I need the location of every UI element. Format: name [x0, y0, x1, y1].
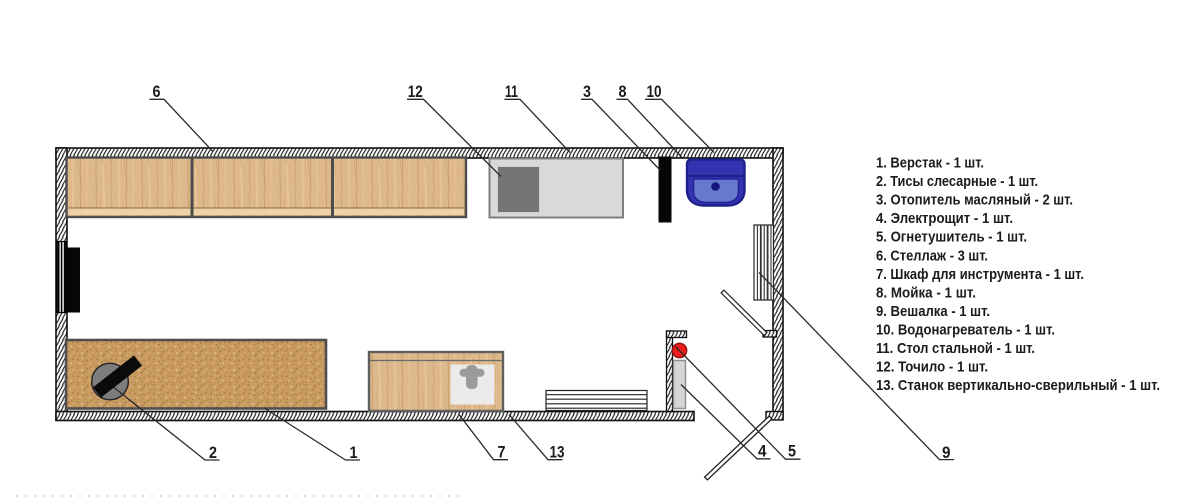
svg-text:9. Вешалка - 1 шт.: 9. Вешалка - 1 шт. — [876, 303, 990, 320]
svg-text:3. Отопитель масляный - 2 шт.: 3. Отопитель масляный - 2 шт. — [876, 192, 1073, 209]
svg-text:5. Огнетушитель - 1 шт.: 5. Огнетушитель - 1 шт. — [876, 229, 1027, 246]
svg-text:4: 4 — [758, 442, 767, 461]
svg-text:3: 3 — [583, 82, 591, 101]
svg-text:1: 1 — [350, 443, 358, 462]
svg-text:12. Точило - 1 шт.: 12. Точило - 1 шт. — [876, 359, 988, 376]
svg-text:11: 11 — [505, 82, 518, 101]
svg-text:8. Мойка - 1 шт.: 8. Мойка - 1 шт. — [876, 284, 976, 301]
svg-text:1. Верстак - 1 шт.: 1. Верстак - 1 шт. — [876, 155, 984, 172]
svg-text:6. Стеллаж - 3 шт.: 6. Стеллаж - 3 шт. — [876, 247, 988, 264]
svg-text:10. Водонагреватель - 1 шт.: 10. Водонагреватель - 1 шт. — [876, 322, 1055, 339]
svg-text:7: 7 — [498, 443, 506, 462]
svg-text:2: 2 — [209, 443, 217, 462]
svg-text:9: 9 — [942, 443, 951, 462]
svg-text:2. Тисы слесарные - 1 шт.: 2. Тисы слесарные - 1 шт. — [876, 173, 1038, 190]
svg-text:4. Электрощит - 1 шт.: 4. Электрощит - 1 шт. — [876, 210, 1013, 227]
svg-text:6: 6 — [153, 82, 161, 101]
svg-text:10: 10 — [647, 82, 662, 101]
svg-text:7. Шкаф для инструмента - 1 шт: 7. Шкаф для инструмента - 1 шт. — [876, 266, 1084, 283]
svg-text:11. Стол стальной - 1 шт.: 11. Стол стальной - 1 шт. — [876, 340, 1035, 357]
svg-text:13. Станок вертикально-свериль: 13. Станок вертикально-сверильный - 1 шт… — [876, 377, 1160, 394]
svg-text:12: 12 — [408, 82, 423, 101]
svg-text:5: 5 — [788, 442, 796, 461]
svg-text:13: 13 — [550, 443, 565, 462]
svg-text:8: 8 — [619, 82, 627, 101]
